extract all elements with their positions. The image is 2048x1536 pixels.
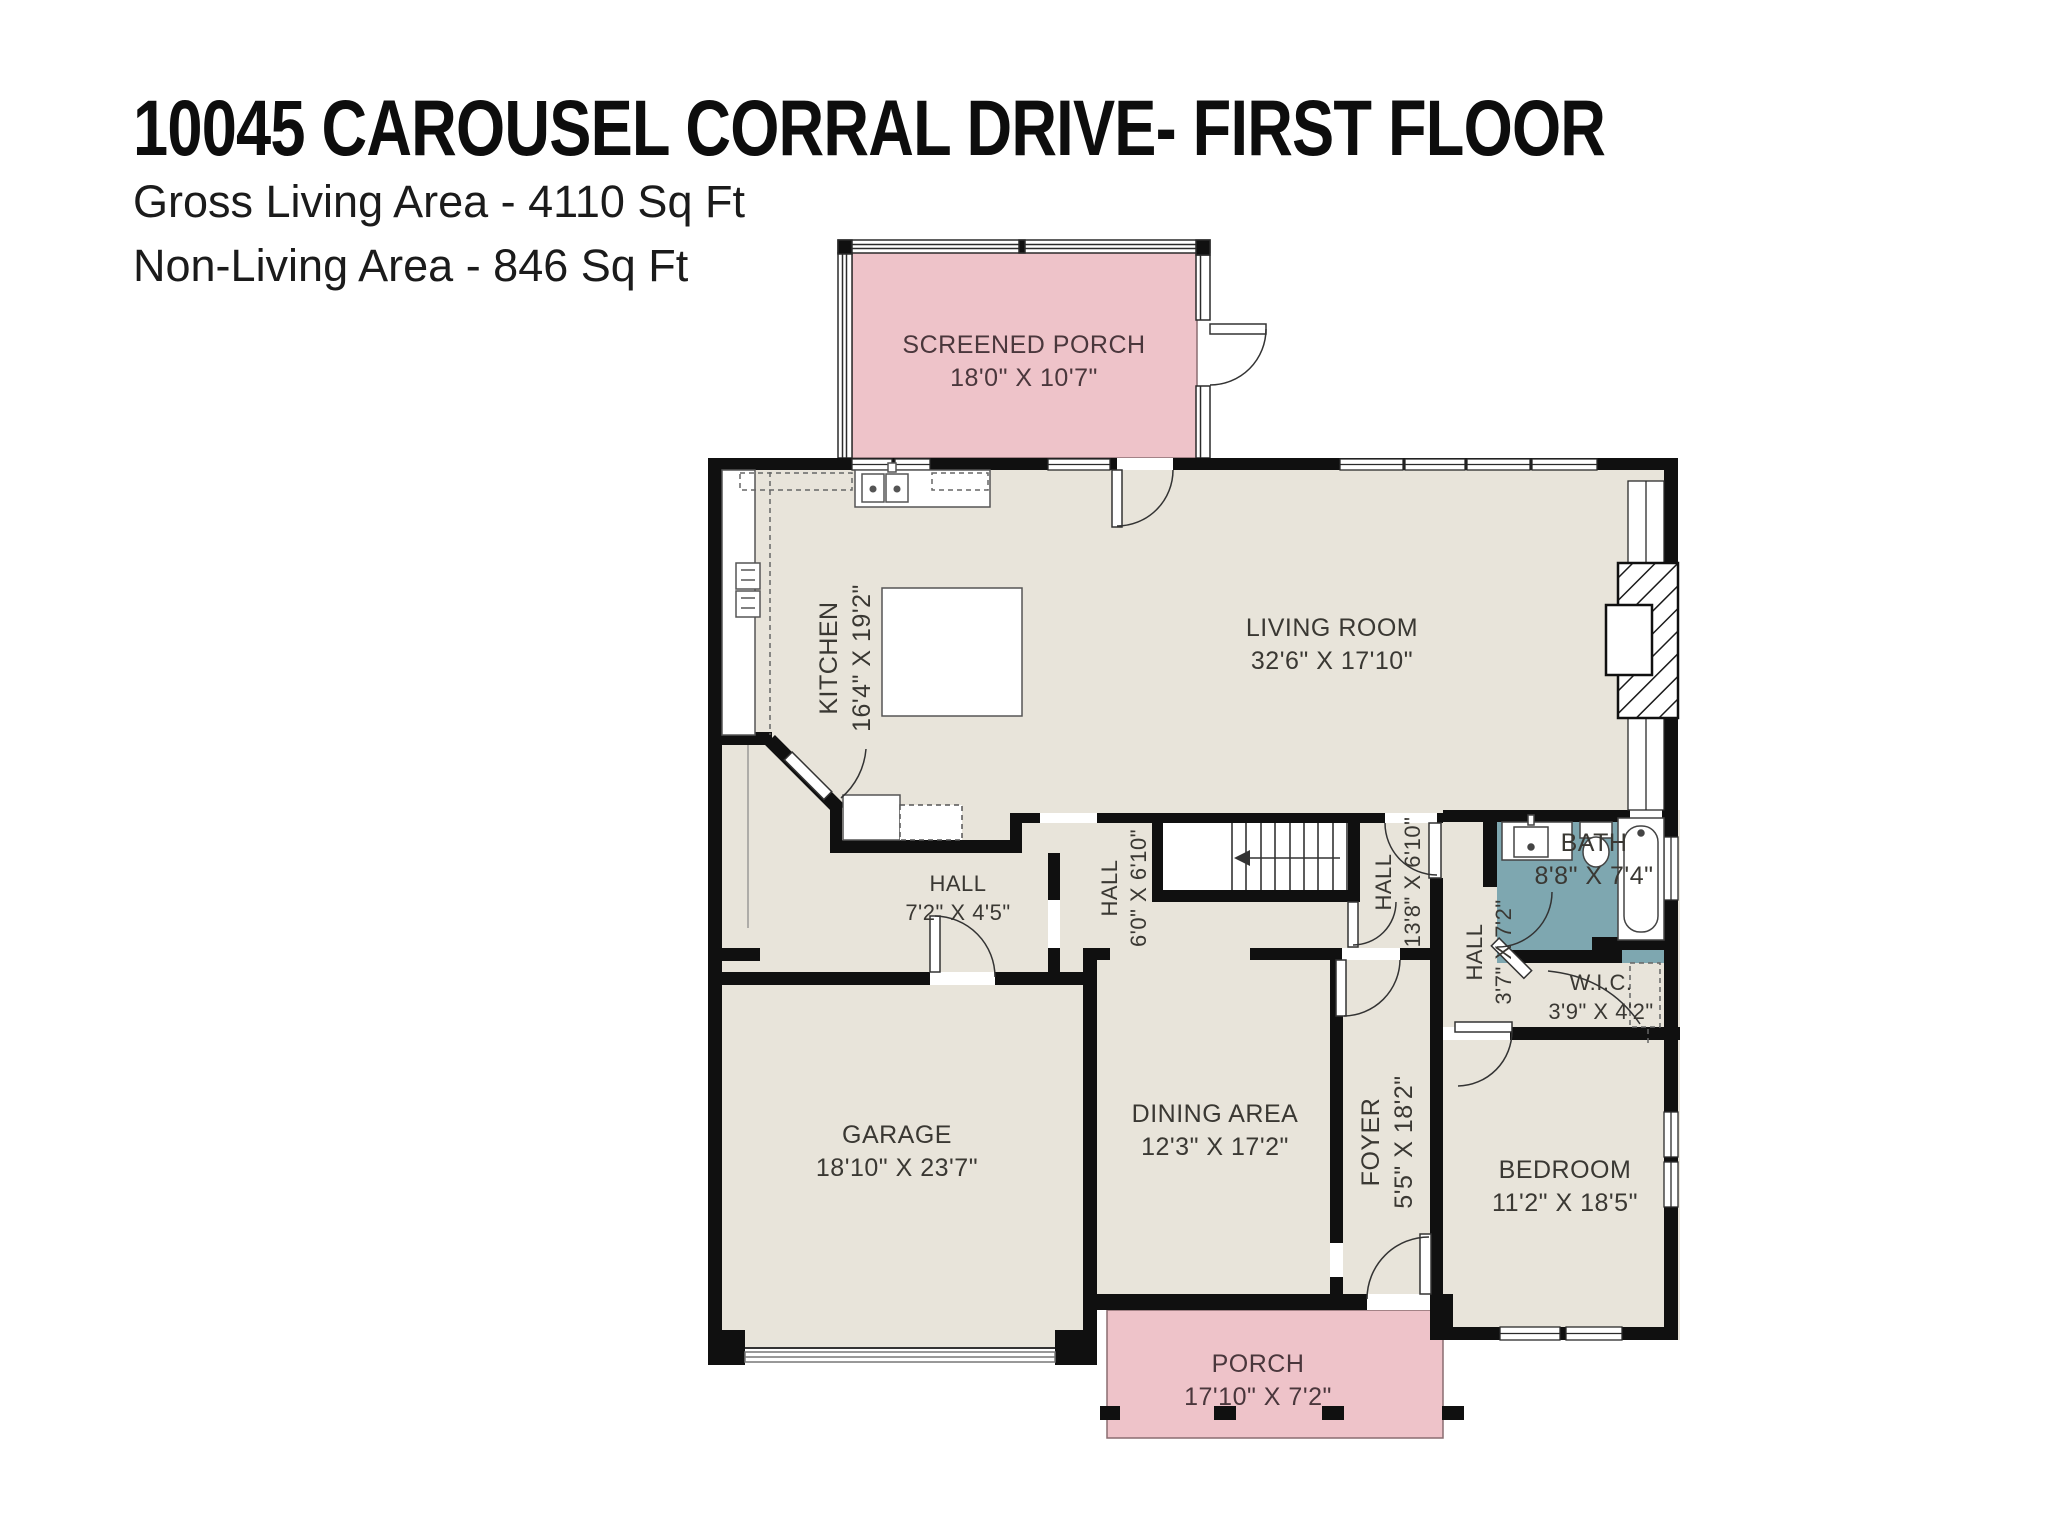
room-label-foyer: FOYER 5'5" X 18'2" [1355,1075,1421,1208]
gross-living-area-text: Gross Living Area - 4110 Sq Ft [133,173,1973,231]
fireplace [1606,563,1678,718]
room-label-dining-area: DINING AREA 12'3" X 17'2" [1132,1098,1299,1164]
screened-porch-door [1210,324,1266,334]
bedroom-door [1455,1022,1512,1032]
room-label-porch: PORCH 17'10" X 7'2" [1184,1348,1332,1414]
header: 10045 CAROUSEL CORRAL DRIVE- FIRST FLOOR… [133,88,1973,294]
room-label-wic: W.I.C. 3'9" X 4'2" [1548,968,1653,1026]
room-label-screened-porch: SCREENED PORCH 18'0" X 10'7" [902,329,1145,395]
room-label-kitchen: KITCHEN 16'4" X 19'2" [813,584,879,732]
room-label-hall-a: HALL 7'2" X 4'5" [905,869,1010,927]
page-title: 10045 CAROUSEL CORRAL DRIVE- FIRST FLOOR [133,88,1605,167]
hall-foyer-door [1336,960,1346,1016]
garage-door [745,1348,1055,1362]
hall-living-door [1429,823,1441,878]
room-label-living-room: LIVING ROOM 32'6" X 17'10" [1246,612,1418,678]
floor-plan-image: 10045 CAROUSEL CORRAL DRIVE- FIRST FLOOR… [0,0,2048,1536]
room-label-hall-c: HALL 13'8" X 6'10" [1369,817,1427,948]
room-label-bath: BATH 8'8" X 7'4" [1535,827,1654,893]
living-room-porch-door [1112,470,1122,527]
room-label-bedroom: BEDROOM 11'2" X 18'5" [1492,1154,1638,1220]
room-label-hall-d: HALL 3'7" X 7'2" [1460,899,1518,1004]
room-label-hall-b: HALL 6'0" X 6'10" [1095,829,1153,947]
stair-door [1348,902,1358,947]
room-label-garage: GARAGE 18'10" X 23'7" [816,1119,978,1185]
non-living-area-text: Non-Living Area - 846 Sq Ft [133,237,1973,295]
front-door [1420,1234,1431,1294]
